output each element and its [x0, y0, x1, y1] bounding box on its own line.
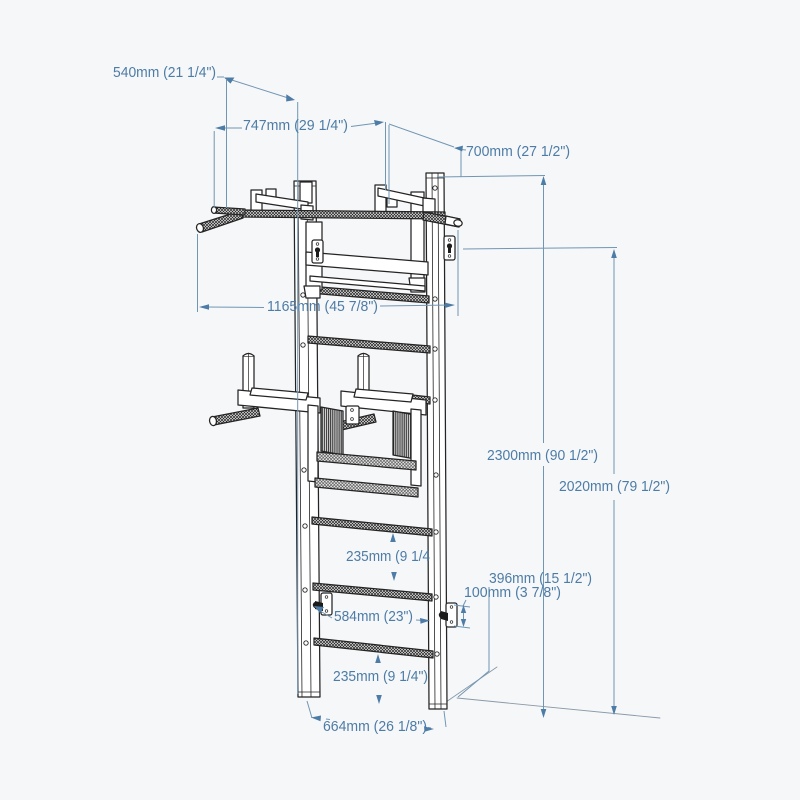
svg-text:100mm (3 7/8"): 100mm (3 7/8") — [464, 585, 561, 601]
svg-text:700mm (27 1/2"): 700mm (27 1/2") — [466, 144, 570, 160]
svg-text:664mm (26 1/8"): 664mm (26 1/8") — [323, 719, 427, 735]
svg-text:584mm (23"): 584mm (23") — [334, 609, 413, 625]
svg-text:540mm (21 1/4"): 540mm (21 1/4") — [113, 65, 216, 81]
svg-text:235mm (9 1/4"): 235mm (9 1/4") — [333, 669, 428, 685]
svg-text:747mm (29 1/4"): 747mm (29 1/4") — [243, 118, 348, 134]
svg-text:2020mm (79 1/2"): 2020mm (79 1/2") — [559, 479, 670, 495]
svg-text:235mm (9 1/4: 235mm (9 1/4 — [346, 549, 430, 565]
svg-text:1165mm (45 7/8"): 1165mm (45 7/8") — [267, 299, 378, 315]
svg-text:2300mm (90 1/2"): 2300mm (90 1/2") — [487, 448, 598, 464]
